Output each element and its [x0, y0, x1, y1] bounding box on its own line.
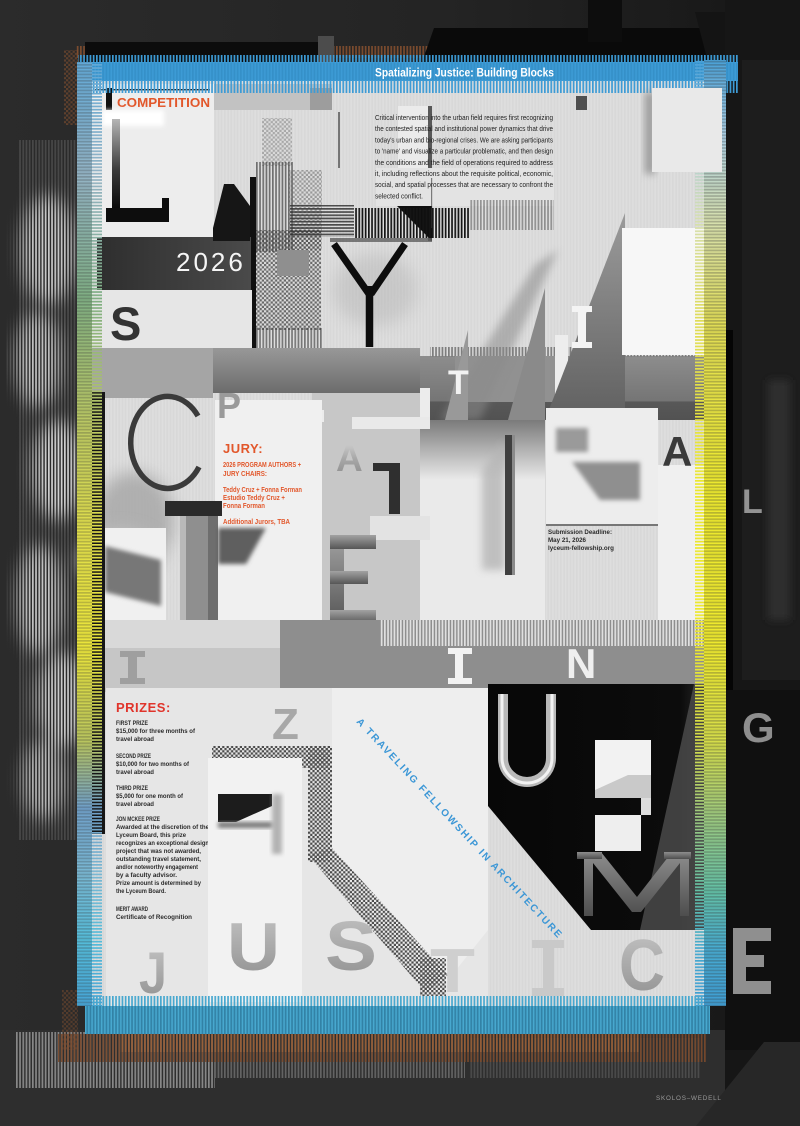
svg-text:JON MCKEE PRIZE: JON MCKEE PRIZE: [116, 816, 160, 823]
svg-text:SKOLOS–WEDELL: SKOLOS–WEDELL: [656, 1095, 722, 1102]
svg-text:2026: 2026: [176, 247, 246, 277]
svg-text:Prize amount is determined by: Prize amount is determined by: [116, 880, 202, 887]
svg-text:PRIZES:: PRIZES:: [116, 700, 171, 715]
svg-text:$10,000 for two months of: $10,000 for two months of: [116, 761, 190, 768]
svg-text:Additional Jurors, TBA: Additional Jurors, TBA: [223, 519, 290, 526]
svg-text:C: C: [619, 926, 665, 1006]
svg-text:G: G: [742, 704, 775, 751]
svg-text:$5,000 for one month of: $5,000 for one month of: [116, 793, 184, 800]
svg-text:JURY CHAIRS:: JURY CHAIRS:: [223, 471, 267, 478]
svg-text:FIRST PRIZE: FIRST PRIZE: [116, 720, 148, 727]
svg-text:Spatializing Justice: Building: Spatializing Justice: Building Blocks: [375, 68, 554, 80]
svg-text:A: A: [662, 428, 692, 475]
svg-text:travel abroad: travel abroad: [116, 769, 154, 776]
svg-text:the conditions and the field o: the conditions and the field of operatio…: [375, 160, 554, 167]
svg-text:travel abroad: travel abroad: [116, 801, 154, 808]
svg-text:Awarded at the discretion of t: Awarded at the discretion of the: [116, 824, 210, 831]
svg-text:SECOND PRIZE: SECOND PRIZE: [116, 753, 151, 760]
svg-text:S: S: [325, 907, 377, 985]
svg-text:by a faculty advisor.: by a faculty advisor.: [116, 872, 177, 879]
svg-text:it, including reflections abou: it, including reflections about the requ…: [375, 171, 553, 178]
svg-text:Estudio Teddy Cruz +: Estudio Teddy Cruz +: [223, 495, 285, 502]
svg-text:P: P: [217, 385, 241, 426]
svg-text:today's urban and bio-regional: today's urban and bio-regional crises. W…: [375, 137, 553, 144]
svg-text:Certificate of Recognition: Certificate of Recognition: [116, 914, 192, 921]
svg-text:L: L: [742, 483, 763, 521]
svg-text:U: U: [227, 909, 280, 985]
svg-text:T: T: [448, 364, 469, 402]
svg-text:recognizes an exceptional desi: recognizes an exceptional design: [116, 840, 209, 847]
svg-text:A: A: [336, 438, 363, 479]
svg-text:S: S: [110, 297, 141, 350]
svg-text:Lyceum Board, this prize: Lyceum Board, this prize: [116, 832, 187, 839]
svg-text:N: N: [566, 640, 596, 687]
svg-text:T: T: [430, 937, 475, 1006]
svg-text:Submission Deadline:: Submission Deadline:: [548, 529, 612, 536]
svg-text:Z: Z: [272, 700, 299, 749]
svg-text:JURY:: JURY:: [223, 441, 263, 456]
svg-text:$15,000 for three months of: $15,000 for three months of: [116, 728, 196, 735]
svg-text:outstanding travel statement,: outstanding travel statement,: [116, 856, 201, 863]
svg-text:project that was not awarded,: project that was not awarded,: [116, 848, 201, 855]
svg-text:2026 PROGRAM AUTHORS +: 2026 PROGRAM AUTHORS +: [223, 462, 301, 469]
svg-text:the contested spatial and inst: the contested spatial and institutional …: [375, 126, 553, 133]
svg-text:selected conflict.: selected conflict.: [375, 193, 423, 200]
svg-text:and/or noteworthy engagement: and/or noteworthy engagement: [116, 864, 198, 871]
svg-text:the Lyceum Board.: the Lyceum Board.: [116, 888, 166, 895]
svg-text:THIRD PRIZE: THIRD PRIZE: [116, 785, 148, 792]
svg-text:travel abroad: travel abroad: [116, 736, 154, 743]
svg-text:lyceum-fellowship.org: lyceum-fellowship.org: [548, 545, 614, 552]
svg-text:Teddy Cruz + Fonna Forman: Teddy Cruz + Fonna Forman: [223, 487, 302, 494]
svg-text:Fonna Forman: Fonna Forman: [223, 503, 265, 510]
svg-text:Critical intervention into the: Critical intervention into the urban fie…: [375, 115, 553, 122]
svg-text:social, and spatial processes: social, and spatial processes that are n…: [375, 182, 553, 189]
svg-text:May 21, 2026: May 21, 2026: [548, 537, 586, 544]
svg-text:COMPETITION: COMPETITION: [117, 96, 210, 110]
svg-text:MERIT AWARD: MERIT AWARD: [116, 906, 148, 913]
svg-text:to 'name' and visualize a part: to 'name' and visualize a particular pro…: [375, 149, 553, 156]
